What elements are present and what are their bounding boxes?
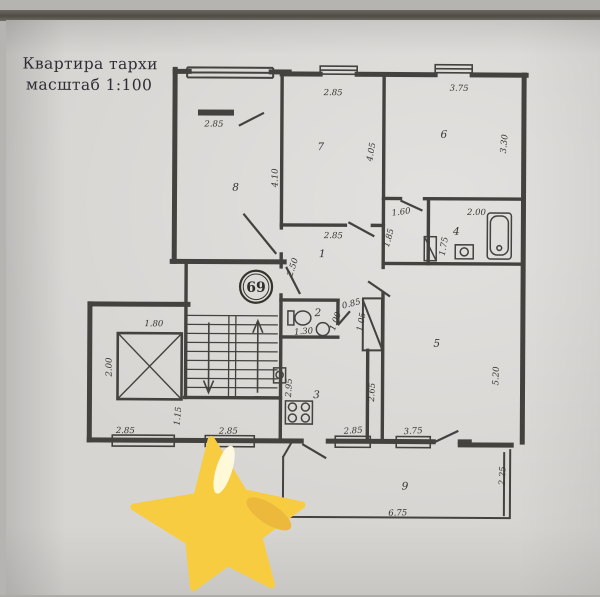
- dimension-label: 4.05: [365, 142, 378, 163]
- room-number-label: 6: [440, 129, 447, 141]
- dimension-label: 1.15: [173, 406, 185, 426]
- dimension-label: 5.20: [491, 366, 502, 386]
- dimension-label: 2.85: [323, 231, 343, 241]
- vent-duct: [424, 237, 436, 261]
- dimension-label: 2.85: [323, 88, 343, 98]
- dimension-label: 4.10: [271, 168, 281, 189]
- dimension-label: 2.85: [218, 427, 238, 437]
- room-number-label: 5: [433, 338, 440, 350]
- dimension-label: 3.75: [403, 426, 423, 437]
- dimension-label: 2.85: [203, 119, 223, 129]
- plan-title: Квартира тархи масштаб 1:100: [22, 55, 157, 95]
- photo-background: Квартира тархи масштаб 1:100: [0, 0, 600, 595]
- room-number-label: 8: [232, 182, 239, 194]
- dimension-label: 2.25: [497, 466, 508, 486]
- star-sticker: [133, 439, 302, 588]
- balcony-walls: [283, 443, 510, 518]
- apartment-number: 69: [246, 280, 266, 296]
- door-leaves: [237, 113, 460, 459]
- room-number-label: 4: [452, 226, 460, 238]
- dimension-label: 1.80: [144, 319, 164, 329]
- stair-direction-arrows: [204, 320, 263, 392]
- dimension-label: 1.60: [391, 206, 412, 219]
- toilet-icon: [288, 311, 311, 325]
- walls: [89, 69, 526, 518]
- dimension-label: 2.00: [466, 208, 487, 218]
- dimension-label: 2.65: [367, 383, 378, 403]
- apartment-number-badge: 69: [240, 271, 272, 303]
- staircase: [186, 315, 277, 396]
- dimension-label: 3.30: [499, 133, 511, 153]
- dimension-label: 2.85: [342, 426, 363, 437]
- dimension-label: 1.30: [294, 326, 314, 338]
- room-number-label: 2: [314, 307, 322, 319]
- room-number-label: 9: [402, 481, 409, 493]
- room-number-label: 3: [313, 389, 320, 401]
- stove-icon: [285, 401, 312, 424]
- dimension-label: 1.05: [355, 312, 368, 332]
- dimension-label: 2.95: [284, 378, 295, 398]
- title-line-2: масштаб 1:100: [26, 76, 152, 95]
- dimension-label: 0.85: [341, 297, 362, 311]
- dimension-label: 2.50: [285, 256, 301, 279]
- room-number-label: 7: [317, 141, 324, 153]
- dimension-label: 2.85: [115, 426, 135, 436]
- title-line-1: Квартира тархи: [23, 55, 158, 74]
- floor-plan-drawing: Квартира тархи масштаб 1:100: [0, 0, 600, 597]
- dimension-label: 2.00: [105, 357, 115, 378]
- dimension-label: 6.75: [388, 508, 407, 519]
- elevator-shaft: [117, 333, 181, 399]
- dimension-label: 3.75: [450, 84, 469, 94]
- washer-icon: [455, 245, 473, 259]
- dimension-label: 1.75: [438, 236, 451, 256]
- room-number-label: 1: [319, 248, 326, 260]
- bathtub-icon: [487, 213, 511, 259]
